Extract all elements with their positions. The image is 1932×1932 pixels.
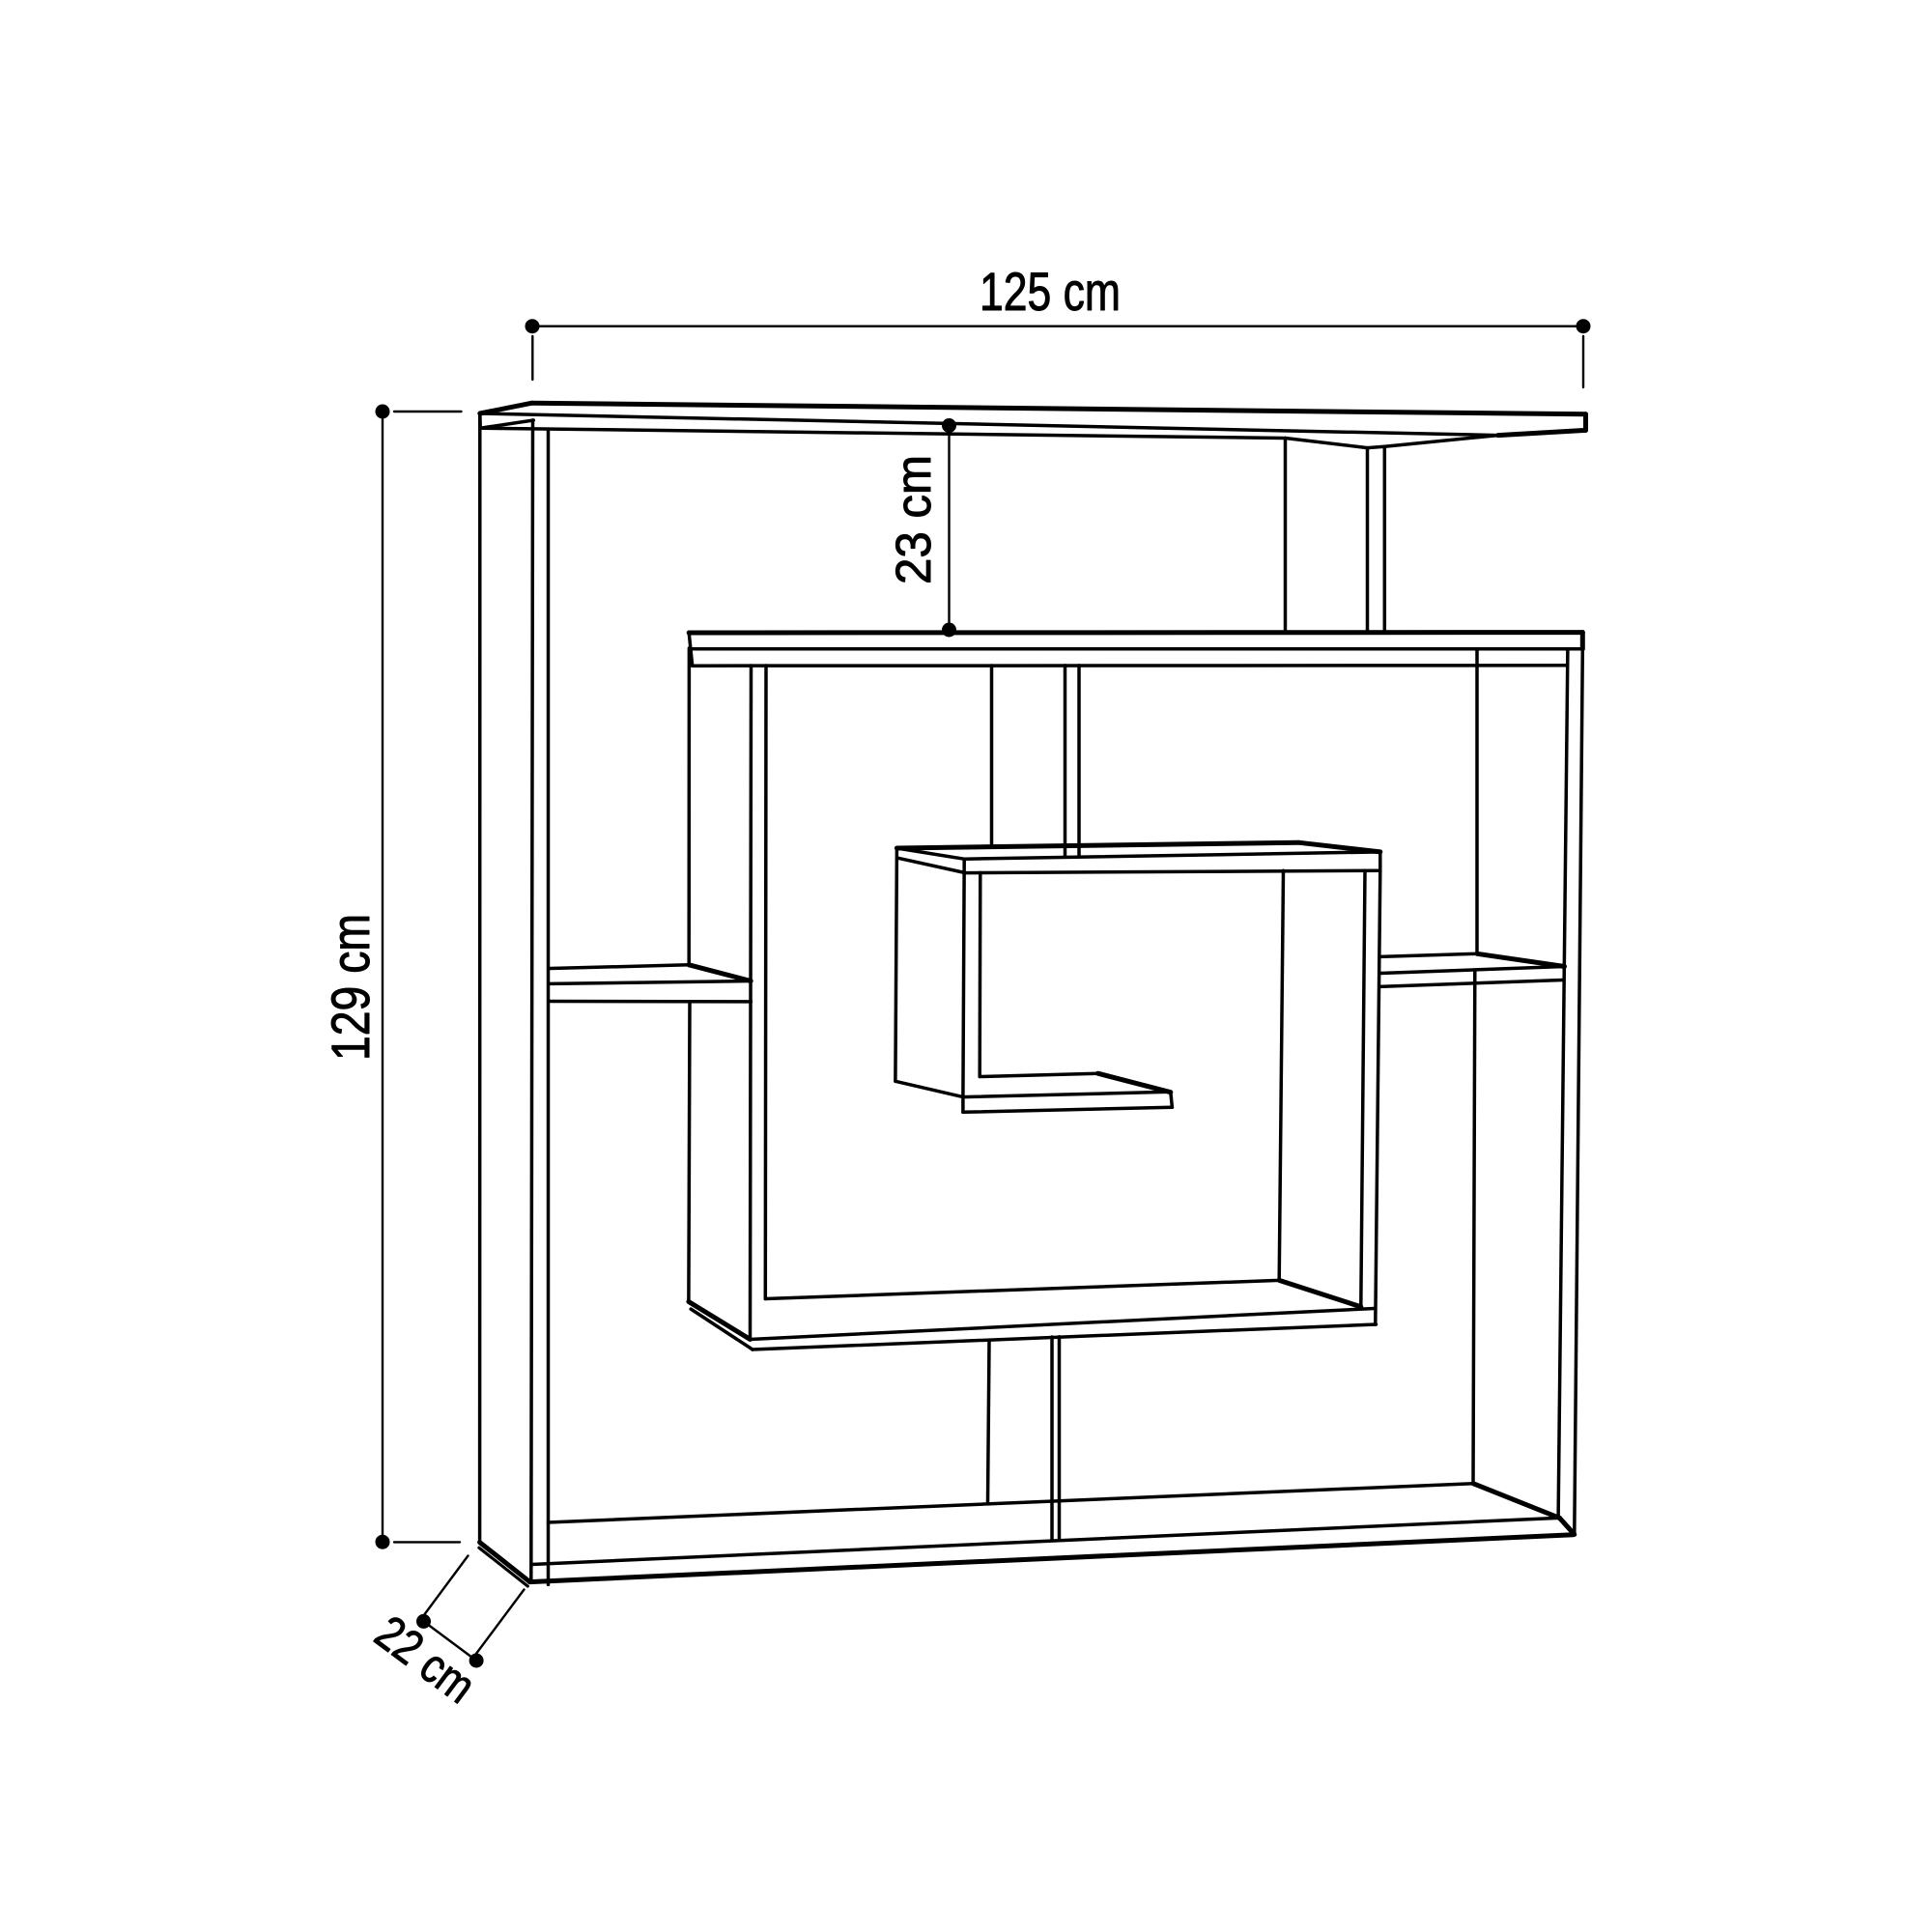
svg-text:23 cm: 23 cm (886, 455, 941, 584)
svg-text:125 cm: 125 cm (980, 261, 1121, 322)
svg-text:129 cm: 129 cm (320, 914, 381, 1061)
